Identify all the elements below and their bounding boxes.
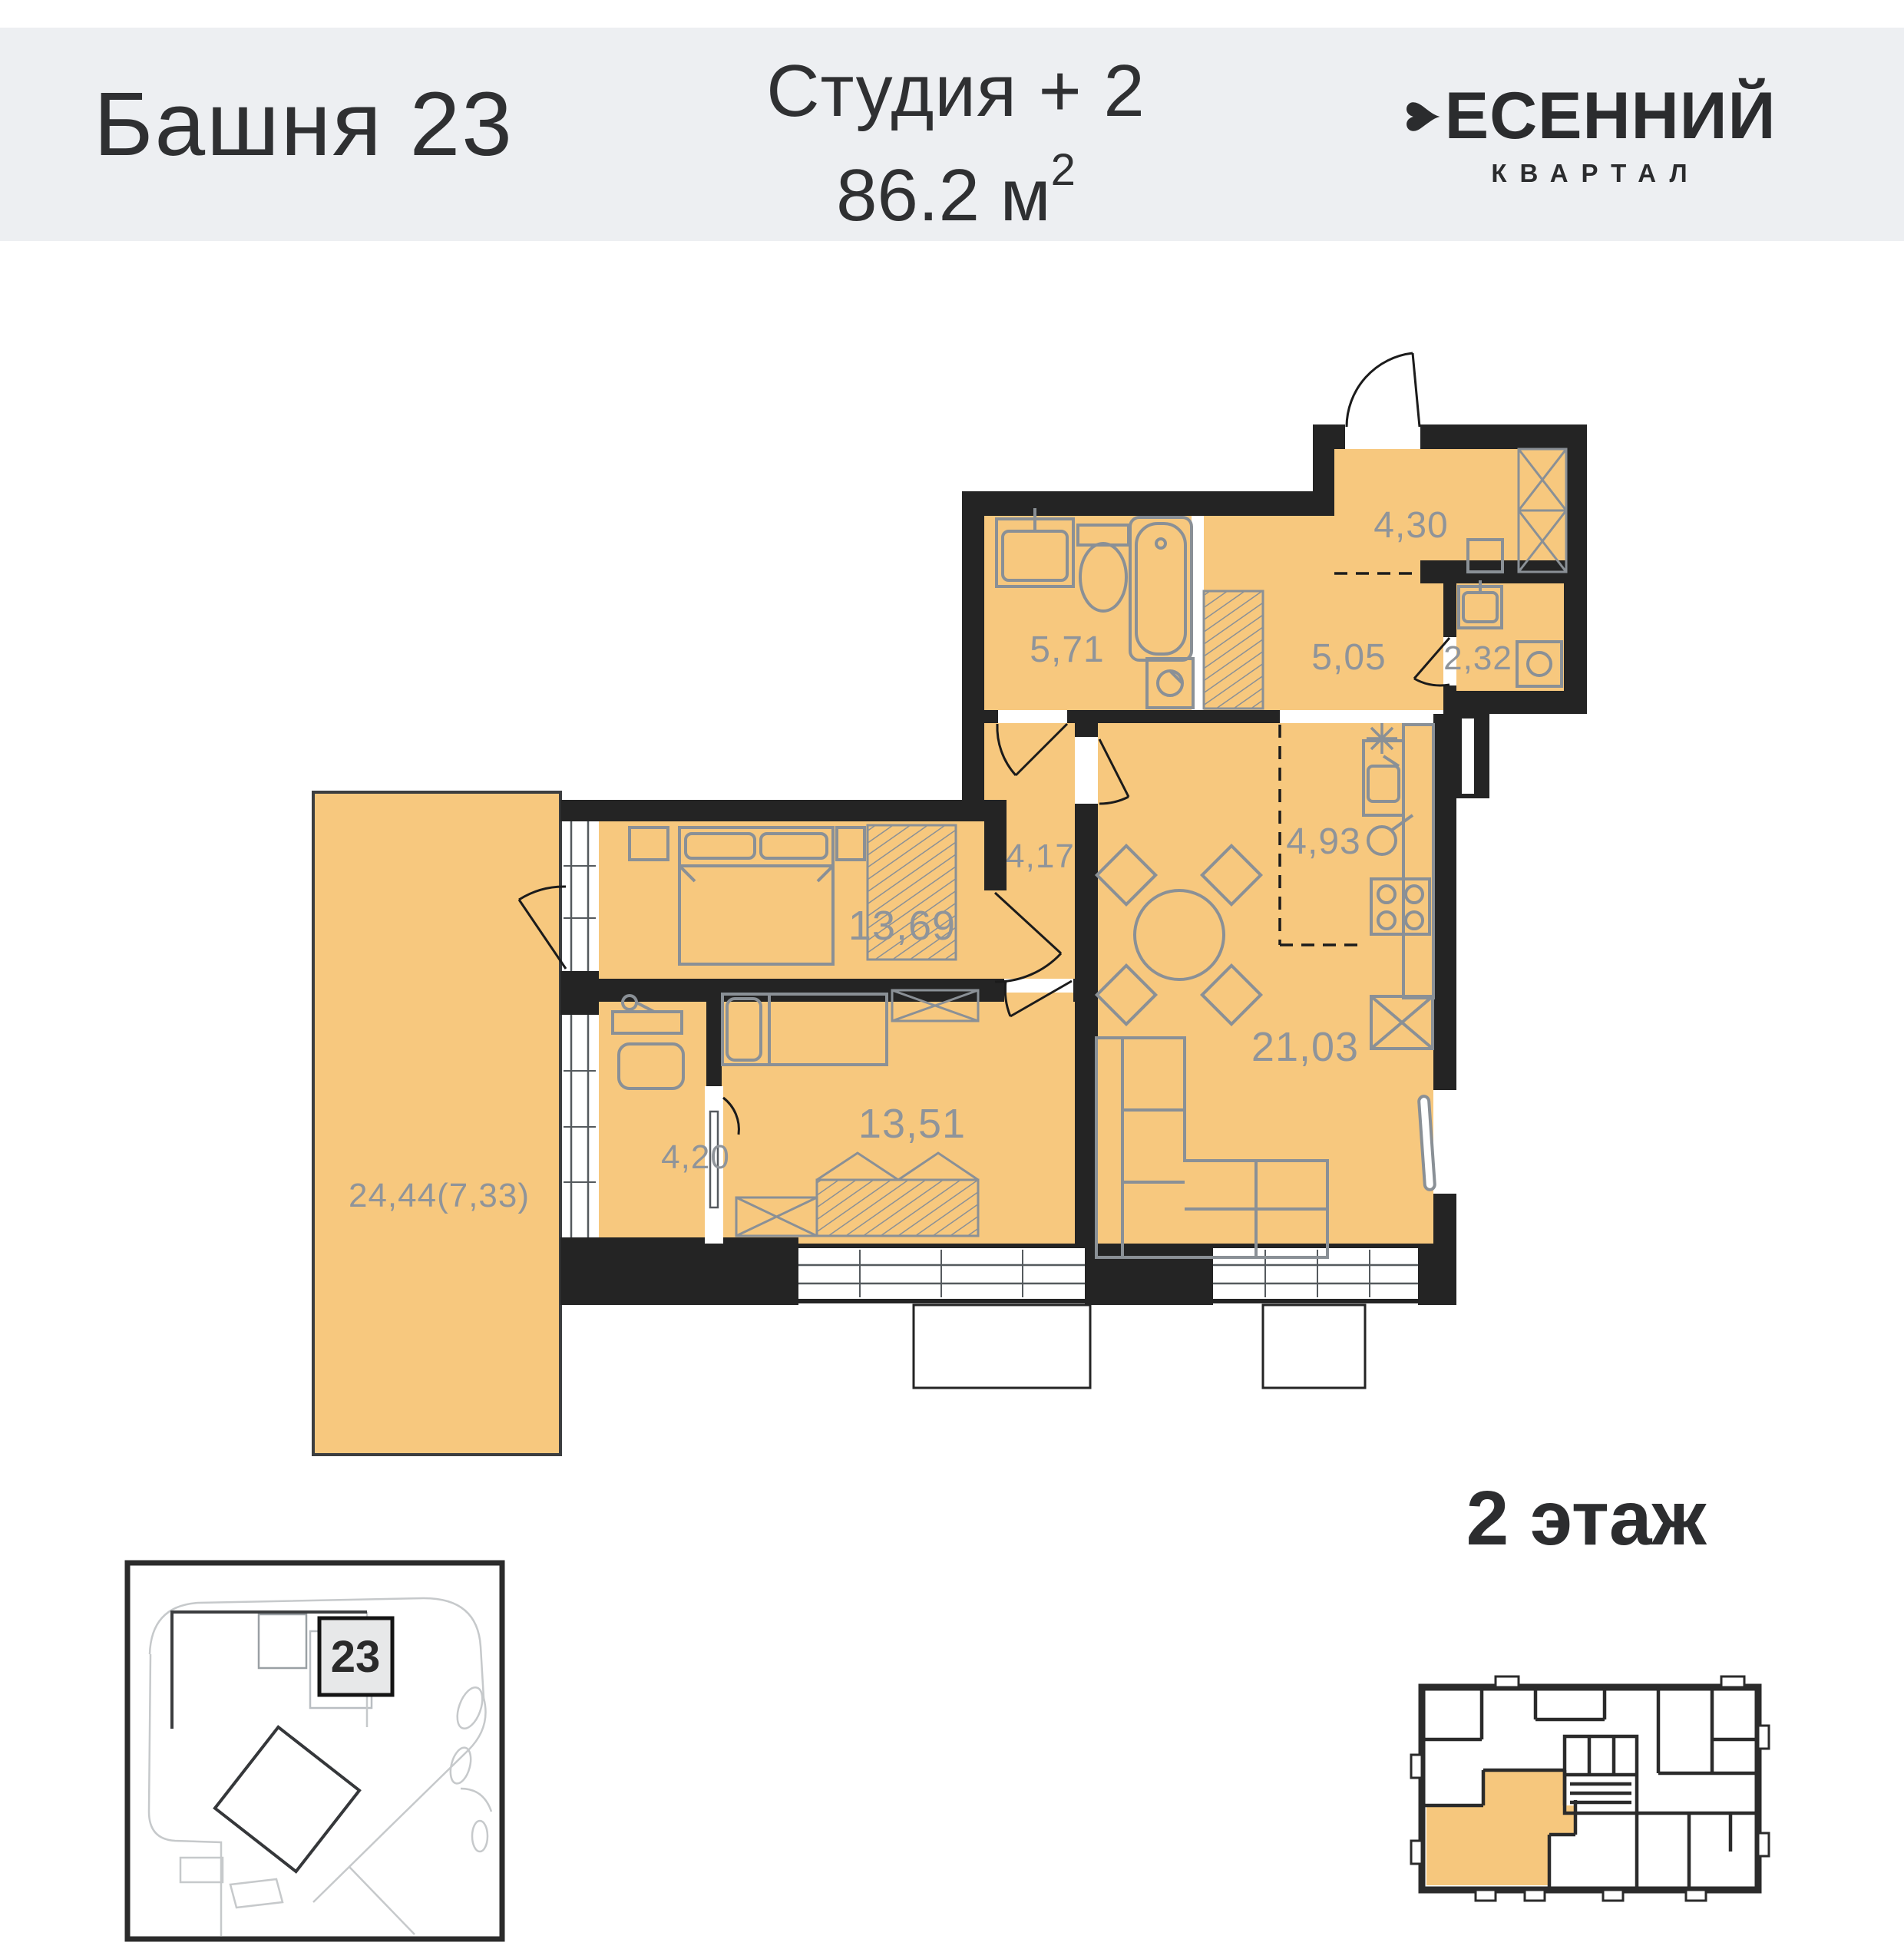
vent-shaft	[1462, 718, 1474, 794]
entry-door	[1347, 353, 1420, 427]
label-bedroom1: 13,69	[848, 903, 956, 949]
mini-highlighted-apartment	[1426, 1772, 1575, 1885]
label-nook: 4,20	[661, 1138, 730, 1176]
label-bathroom: 5,71	[1030, 629, 1104, 670]
page: Башня 23 Студия + 2 86.2 м2 ЕСЕННИЙ КВАР…	[0, 0, 1904, 1949]
label-entry-hall: 5,05	[1311, 637, 1386, 678]
site-badge: 23	[319, 1618, 392, 1695]
site-badge-number: 23	[331, 1632, 381, 1682]
label-loggia: 4,30	[1373, 505, 1448, 546]
site-plan: 23	[127, 1563, 502, 1939]
label-bedroom2: 13,51	[858, 1101, 966, 1147]
floor-plan-canvas: 5,71 5,05 4,30 2,32 4,17 4,93 21,03 13,6…	[0, 0, 1904, 1949]
label-terrace: 24,44(7,33)	[349, 1177, 530, 1214]
floor-title: 2 этаж	[1466, 1475, 1707, 1561]
label-wc: 2,32	[1443, 639, 1512, 677]
label-corridor: 4,17	[1006, 837, 1075, 875]
terrace	[313, 792, 560, 1455]
mini-floor-plan: 2 этаж	[1411, 1475, 1769, 1901]
label-kitchen: 4,93	[1286, 821, 1360, 862]
label-living: 21,03	[1251, 1024, 1359, 1070]
snowflake-icon	[1367, 723, 1397, 754]
